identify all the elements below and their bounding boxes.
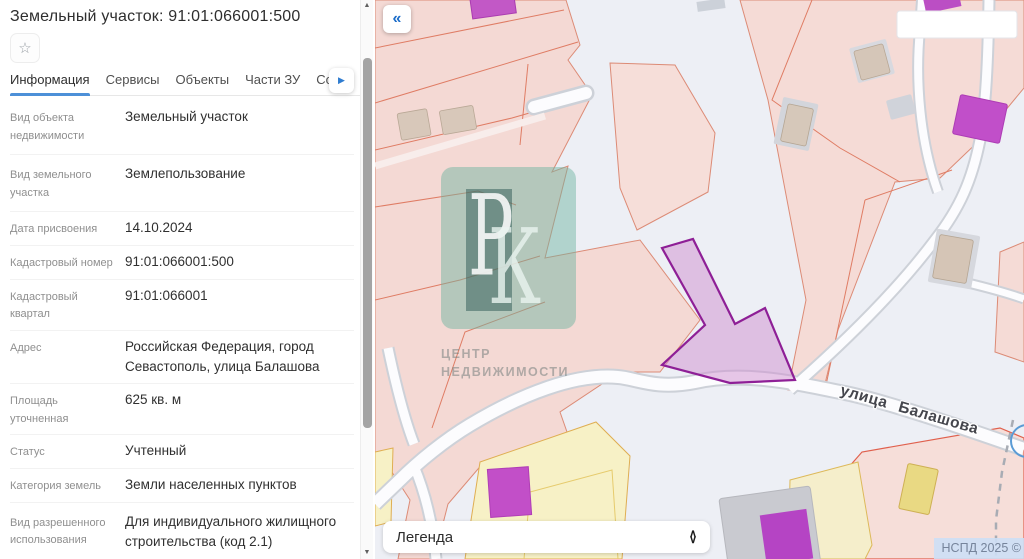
field-value: Для индивидуального жилищного строительс… [115,512,354,553]
map-canvas[interactable]: « Р К ЦЕНТР НЕДВИЖИМОСТИ улица Балашова … [375,0,1024,559]
tab-services[interactable]: Сервисы [106,72,160,87]
field-row: Адрес Российская Федерация, город Севаст… [10,330,354,384]
field-row: Статус Учтенный [10,434,354,468]
field-label: Кадастровый номер [10,252,115,273]
field-value: Земельный участок [115,107,354,145]
field-label: Вид объекта недвижимости [10,107,115,145]
field-label: Вид земельного участка [10,164,115,202]
field-value: Учтенный [115,441,354,462]
cadastral-map-app: Земельный участок: 91:01:066001:500 ☆ Ин… [0,0,1024,559]
field-row: Дата присвоения 14.10.2024 [10,211,354,245]
tab-bar: Информация Сервисы Объекты Части ЗУ Сост… [10,72,360,96]
map-layers [375,0,1024,559]
chevron-right-icon: ▶ [338,75,345,86]
building-purple [487,467,531,518]
field-row: Вид объекта недвижимости Земельный участ… [10,98,354,154]
scroll-down-icon[interactable]: ▼ [361,547,373,559]
field-row: Вид разрешенного использования Для индив… [10,502,354,559]
map-attribution: НСПД 2025 © [934,538,1024,559]
field-value: 625 кв. м [115,390,354,428]
star-icon: ☆ [18,41,31,56]
favorite-button[interactable]: ☆ [10,33,40,63]
building-purple [760,509,814,559]
panel-scrollbar[interactable]: ▲ ▼ [360,0,373,559]
field-value: Землепользование [115,164,354,202]
scrollbar-thumb[interactable] [363,58,372,428]
field-value: 91:01:066001:500 [115,252,354,273]
field-label: Площадь уточненная [10,390,115,428]
building-tan [397,109,431,141]
building-tan [932,234,973,283]
legend-label: Легенда [396,529,689,546]
field-value: Земли населенных пунктов [115,475,354,496]
field-label: Дата присвоения [10,218,115,239]
page-title: Земельный участок: 91:01:066001:500 [10,8,360,26]
field-row: Кадастровый номер 91:01:066001:500 [10,245,354,279]
field-label: Категория земель [10,475,115,496]
field-label: Адрес [10,337,115,378]
field-list: Вид объекта недвижимости Земельный участ… [10,98,360,559]
legend-bar[interactable]: Легенда ∧ ∨ [383,521,710,553]
collapse-panel-button[interactable]: « [383,5,411,33]
panel-content: Земельный участок: 91:01:066001:500 ☆ Ин… [0,0,360,559]
map-label-box [897,11,1017,38]
field-row: Кадастровый квартал 91:01:066001 [10,279,354,330]
field-label: Вид разрешенного использования [10,512,115,553]
field-row: Категория земель Земли населенных пункто… [10,468,354,502]
field-value: Российская Федерация, город Севастополь,… [115,337,354,378]
scroll-up-icon[interactable]: ▲ [361,0,373,12]
legend-toggle-icon[interactable]: ∧ ∨ [689,531,697,543]
field-label: Кадастровый квартал [10,286,115,324]
chevron-down-icon: ∨ [689,537,697,543]
field-row: Площадь уточненная 625 кв. м [10,383,354,434]
field-value: 91:01:066001 [115,286,354,324]
tab-objects[interactable]: Объекты [175,72,229,87]
tab-information[interactable]: Информация [10,72,90,87]
tab-parcel-parts[interactable]: Части ЗУ [245,72,300,87]
field-label: Статус [10,441,115,462]
field-row: Вид земельного участка Землепользование [10,154,354,211]
tabs-scroll-right-button[interactable]: ▶ [329,68,354,93]
object-info-panel: Земельный участок: 91:01:066001:500 ☆ Ин… [0,0,375,559]
collapse-icon: « [393,10,402,28]
field-value: 14.10.2024 [115,218,354,239]
